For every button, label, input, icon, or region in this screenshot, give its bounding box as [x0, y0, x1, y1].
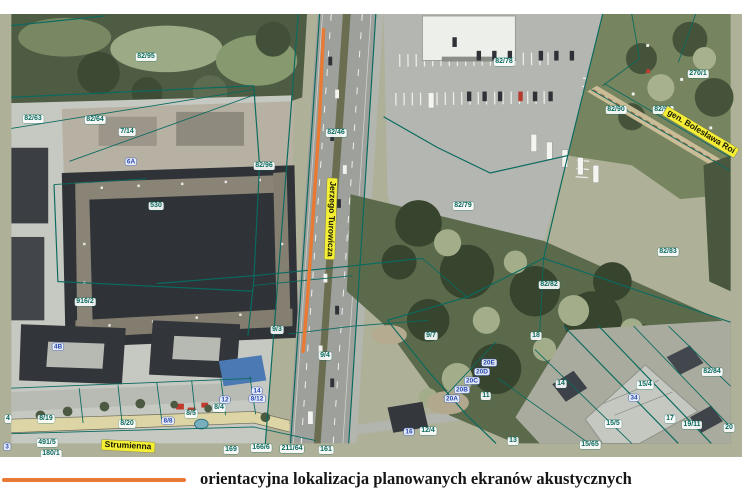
- caption: orientacyjna lokalizacja planowanych ekr…: [0, 457, 742, 500]
- scanned-map-page: 82/9582/6382/647/1482/4682/78270/182/908…: [0, 0, 742, 500]
- aerial-photo-graphic: [0, 14, 742, 457]
- aerial-map: [0, 14, 742, 457]
- acoustic-screen-legend-line: [2, 478, 186, 482]
- caption-text: orientacyjna lokalizacja planowanych ekr…: [200, 469, 740, 489]
